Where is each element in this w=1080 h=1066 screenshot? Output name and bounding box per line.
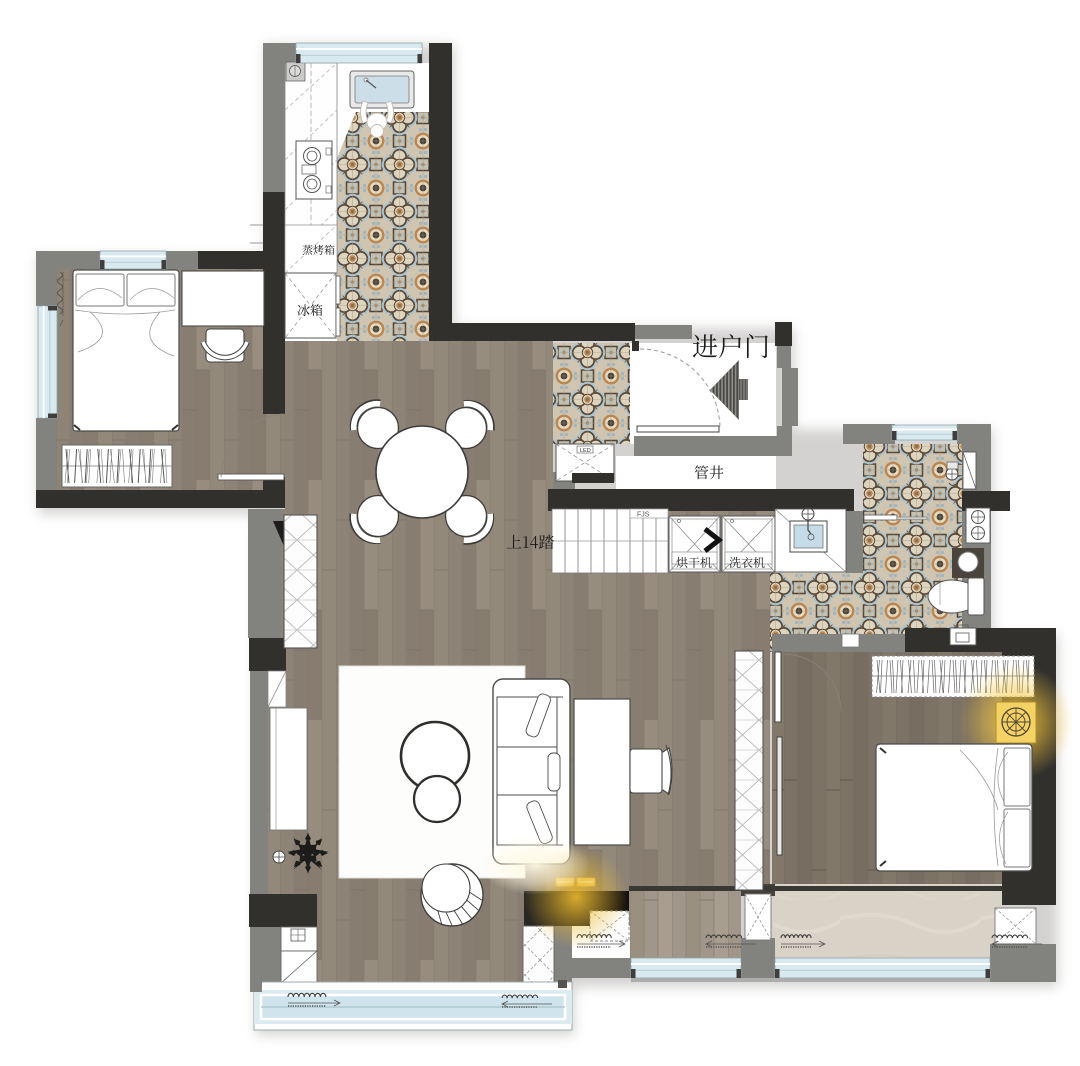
svg-text:LED: LED bbox=[580, 448, 591, 454]
svg-text:FJS: FJS bbox=[637, 512, 650, 519]
